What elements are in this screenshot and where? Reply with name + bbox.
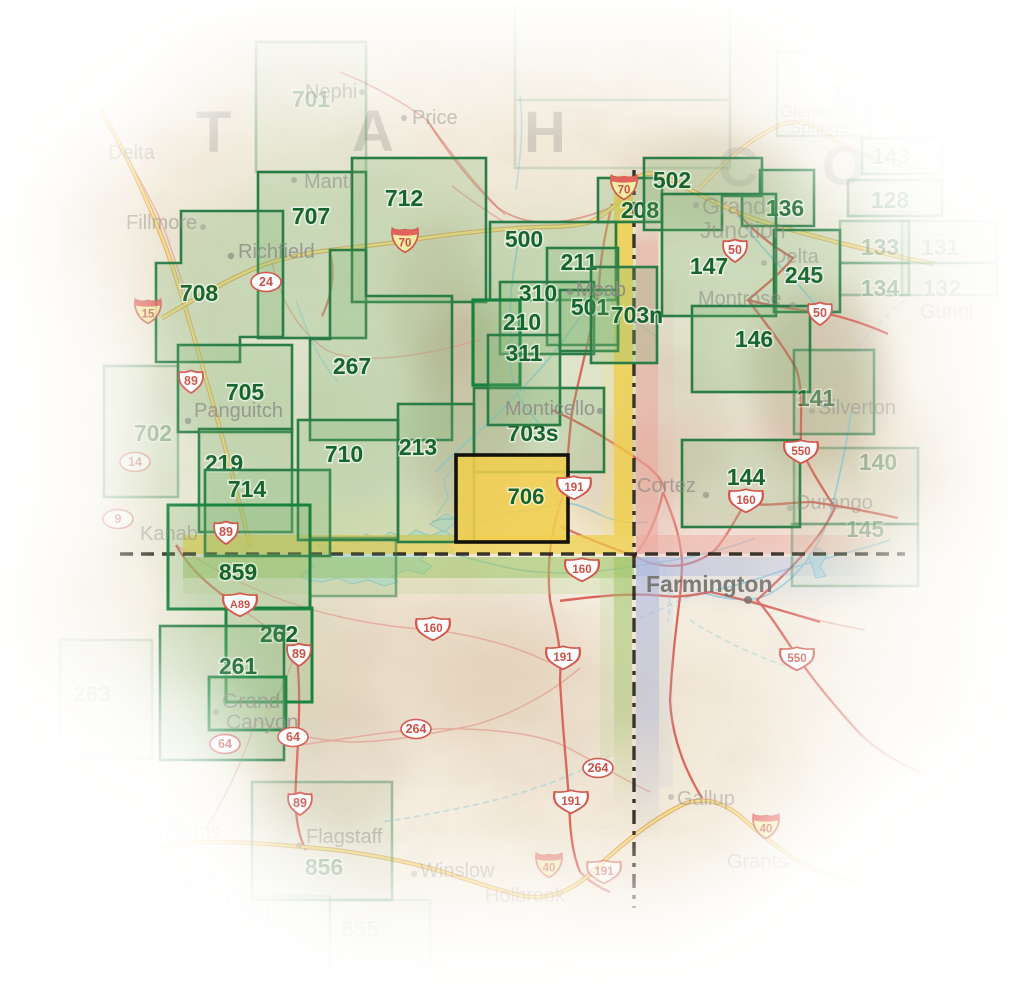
svg-text:550: 550 (791, 446, 810, 458)
svg-text:710: 710 (325, 441, 363, 467)
svg-text:24: 24 (259, 275, 273, 289)
svg-text:Panguitch: Panguitch (194, 400, 283, 422)
svg-text:261: 261 (219, 653, 258, 679)
svg-text:70: 70 (618, 185, 631, 197)
svg-text:146: 146 (735, 326, 773, 352)
svg-text:191: 191 (561, 796, 581, 808)
svg-text:64: 64 (286, 730, 300, 744)
svg-text:147: 147 (690, 253, 728, 279)
svg-text:712: 712 (385, 185, 423, 211)
svg-text:Cortez: Cortez (637, 475, 696, 497)
svg-text:714: 714 (228, 476, 267, 502)
svg-text:89: 89 (293, 796, 307, 810)
svg-text:70: 70 (399, 238, 412, 250)
svg-text:50: 50 (728, 243, 742, 257)
svg-text:160: 160 (572, 564, 591, 576)
svg-text:Farmington: Farmington (646, 571, 773, 597)
svg-text:Junction: Junction (700, 217, 786, 243)
svg-text:89: 89 (292, 647, 306, 661)
svg-text:Monticello: Monticello (505, 398, 595, 420)
svg-text:502: 502 (653, 167, 691, 193)
svg-text:160: 160 (736, 495, 755, 507)
svg-text:144: 144 (727, 464, 766, 490)
svg-text:310: 310 (519, 280, 557, 306)
svg-text:707: 707 (292, 203, 330, 229)
svg-text:706: 706 (508, 484, 545, 509)
svg-text:Grand: Grand (702, 193, 766, 219)
svg-text:Grand: Grand (222, 690, 280, 713)
svg-text:50: 50 (813, 306, 827, 320)
svg-text:89: 89 (184, 374, 198, 388)
svg-text:213: 213 (399, 434, 437, 460)
svg-text:500: 500 (505, 226, 543, 252)
svg-text:311: 311 (505, 340, 542, 366)
svg-text:Gallup: Gallup (677, 788, 735, 810)
svg-text:Montrose: Montrose (698, 288, 781, 310)
svg-text:264: 264 (406, 722, 427, 736)
svg-text:708: 708 (180, 280, 219, 306)
svg-text:A89: A89 (230, 599, 250, 611)
svg-text:160: 160 (423, 623, 442, 635)
svg-text:267: 267 (333, 353, 371, 379)
svg-text:191: 191 (553, 652, 573, 664)
svg-text:Delta: Delta (772, 246, 820, 268)
svg-text:Manti: Manti (304, 171, 353, 193)
svg-text:Richfield: Richfield (238, 241, 315, 263)
svg-text:89: 89 (219, 525, 233, 539)
svg-text:210: 210 (503, 309, 541, 335)
svg-text:Moab: Moab (576, 279, 626, 301)
svg-text:859: 859 (219, 559, 257, 585)
svg-text:703n: 703n (611, 302, 663, 328)
svg-text:191: 191 (564, 482, 584, 494)
svg-text:264: 264 (588, 761, 609, 775)
